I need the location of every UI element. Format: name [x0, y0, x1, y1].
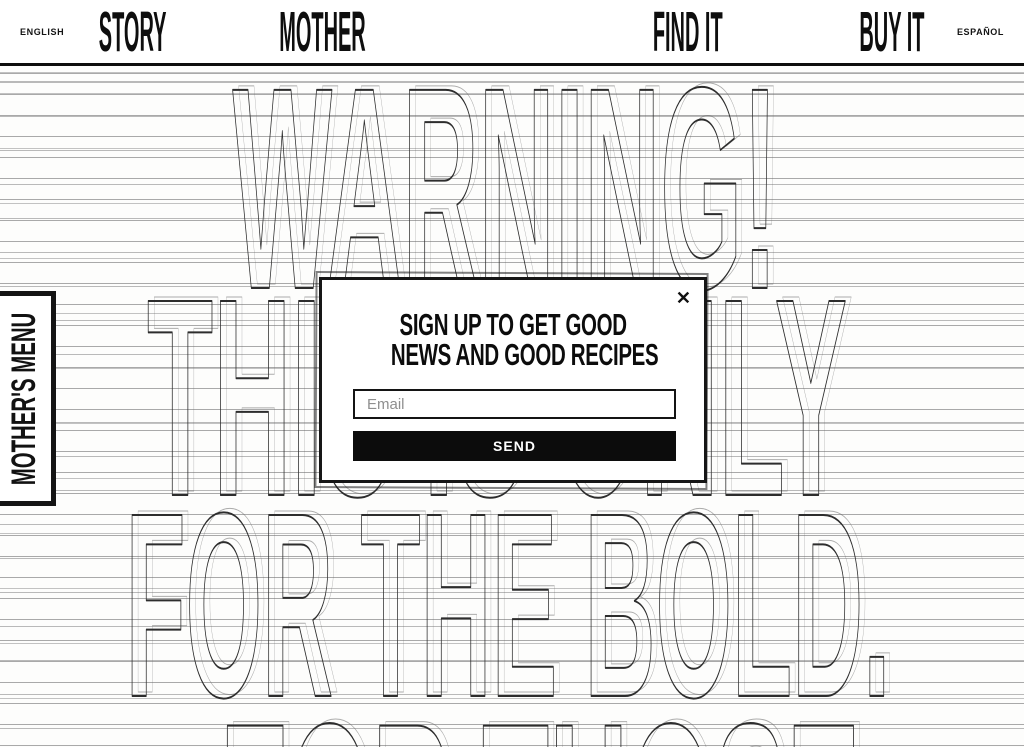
nav-item-story[interactable]: STORY	[99, 2, 167, 61]
send-button[interactable]: SEND	[353, 431, 676, 461]
nav-item-buy-it[interactable]: BUY IT	[859, 2, 924, 61]
signup-title-line1: SIGN UP TO GET GOOD	[399, 310, 626, 340]
mothers-menu-label: MOTHER'S MENU	[7, 312, 41, 485]
email-input[interactable]	[353, 389, 676, 419]
nav-slot-mother: MOTHER	[172, 0, 472, 63]
signup-modal: ✕ SIGN UP TO GET GOOD NEWS AND GOOD RECI…	[319, 277, 707, 483]
signup-modal-title: SIGN UP TO GET GOOD NEWS AND GOOD RECIPE…	[322, 310, 704, 370]
hero-line4: FOR THOSE	[220, 669, 860, 747]
language-toggle-espanol[interactable]: ESPAÑOL	[957, 27, 1004, 37]
page: WARNING! THIS IS ONLY FOR THE BOLD. FOR …	[0, 0, 1024, 747]
top-nav: ENGLISH STORY MOTHER FIND IT BUY IT ESPA…	[0, 0, 1024, 66]
nav-item-find-it[interactable]: FIND IT	[653, 2, 723, 61]
mothers-menu-button[interactable]: MOTHER'S MENU	[0, 291, 56, 506]
close-icon[interactable]: ✕	[674, 287, 693, 309]
signup-title-line2: NEWS AND GOOD RECIPES	[391, 340, 658, 370]
nav-item-mother[interactable]: MOTHER	[279, 2, 365, 61]
